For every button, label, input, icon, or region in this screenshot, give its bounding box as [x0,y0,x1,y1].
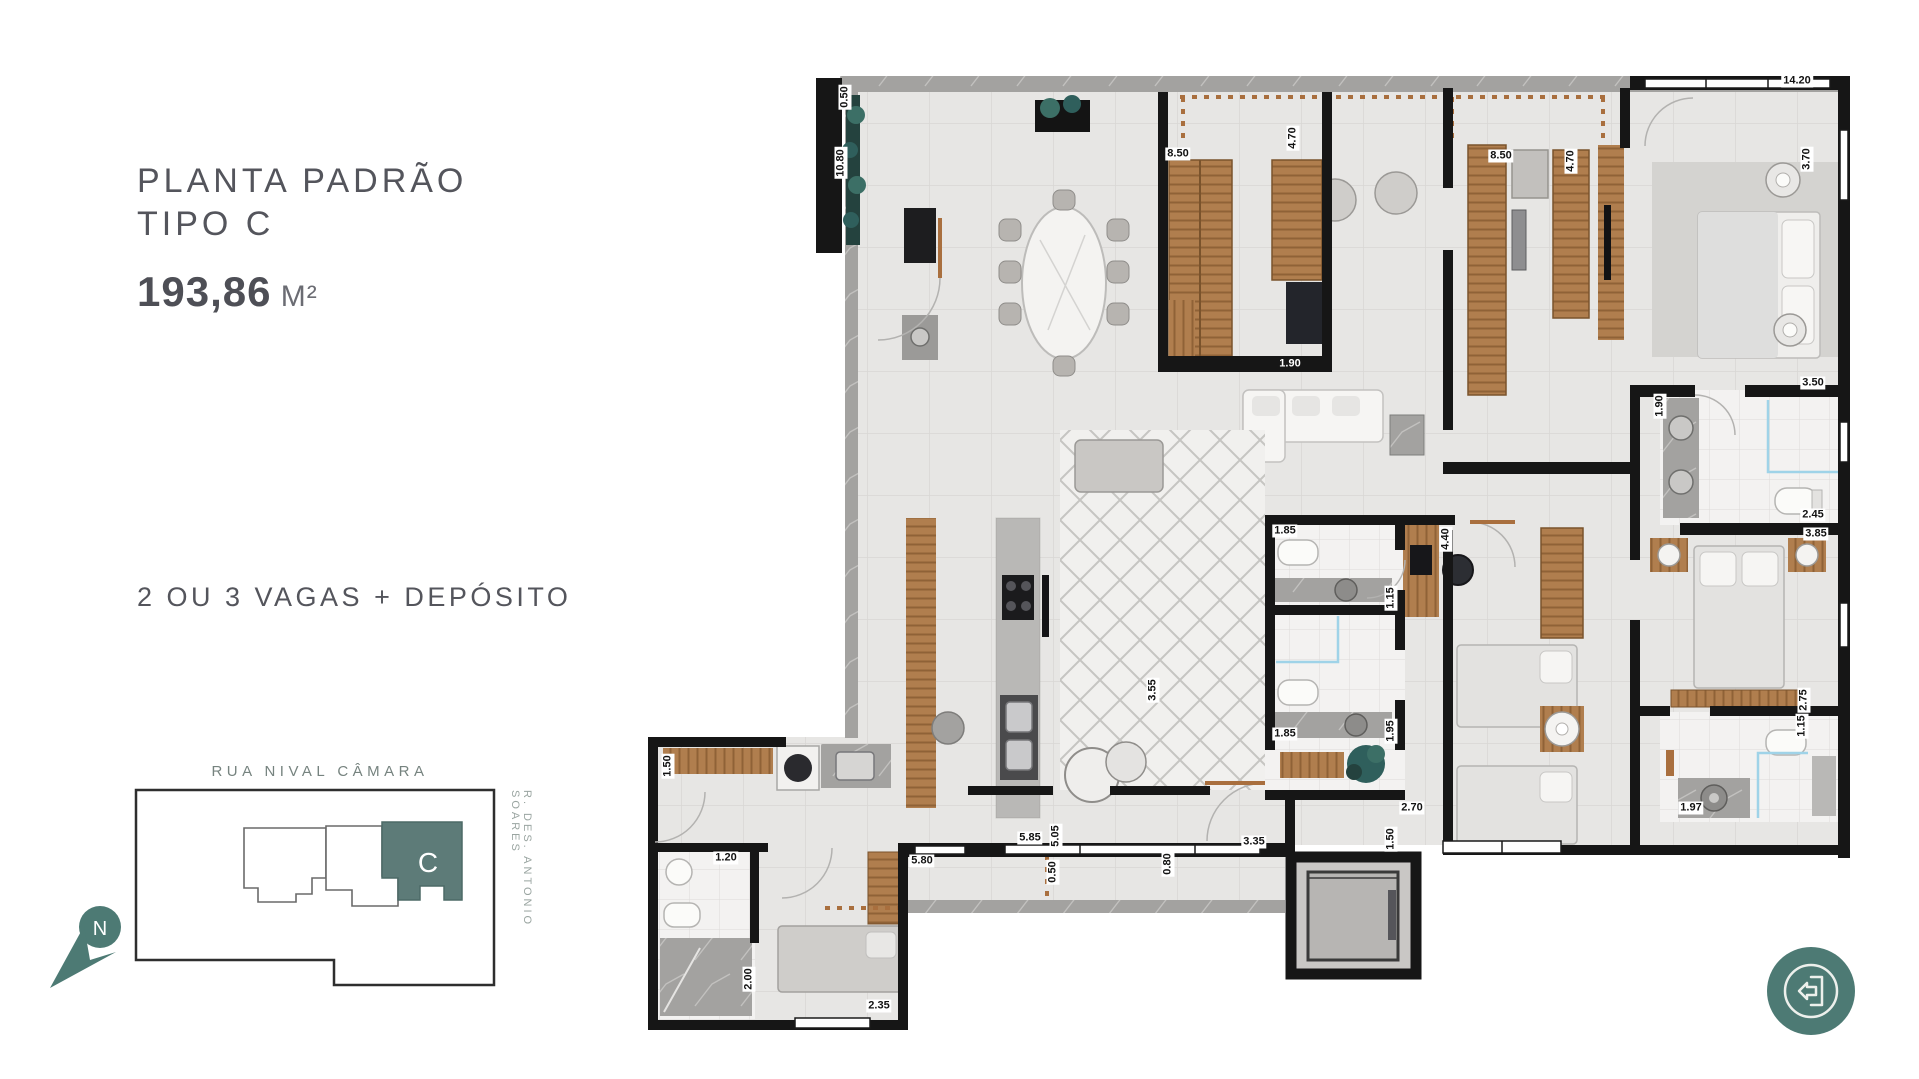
cooktop [1002,575,1034,620]
elevator-car [1308,872,1398,960]
laundry-shelf [663,748,773,774]
toilet [1278,680,1318,705]
column-cylinder [932,712,964,744]
wardrobe [1541,528,1583,638]
floor-plan [0,0,1919,1079]
wardrobe [868,852,902,924]
dresser-tv-unit [1286,282,1322,344]
tv-screen [1604,205,1611,280]
towel-bar [1666,750,1674,776]
vanity [1272,578,1392,602]
toilet [1775,488,1817,514]
mirror-panel [1512,210,1526,270]
toilet [1278,540,1318,565]
kitchen-cabinet [906,518,936,808]
sink [666,859,692,885]
shower-floor [660,938,752,1016]
wall-pillar [816,78,842,253]
back-button[interactable] [1767,947,1855,1035]
exit-arrow-icon [1780,960,1842,1022]
wardrobe [1553,150,1589,318]
toilet [664,903,700,927]
side-table [1390,415,1424,455]
island-tv [1042,575,1049,637]
vanity [1272,712,1392,738]
grill-appliance [904,208,936,263]
shower-floor [1812,756,1836,816]
elevator-shaft [1291,857,1416,974]
coffee-table-2 [1106,742,1146,782]
tv-sofa [1075,440,1163,492]
balcony-parapet-bottom [903,900,1285,913]
wardrobe [1468,145,1506,395]
wardrobe [1272,160,1322,280]
wardrobe [1671,690,1803,707]
closet-bench [1512,150,1548,198]
toilet [1766,730,1806,755]
slat-bench [1280,752,1344,778]
